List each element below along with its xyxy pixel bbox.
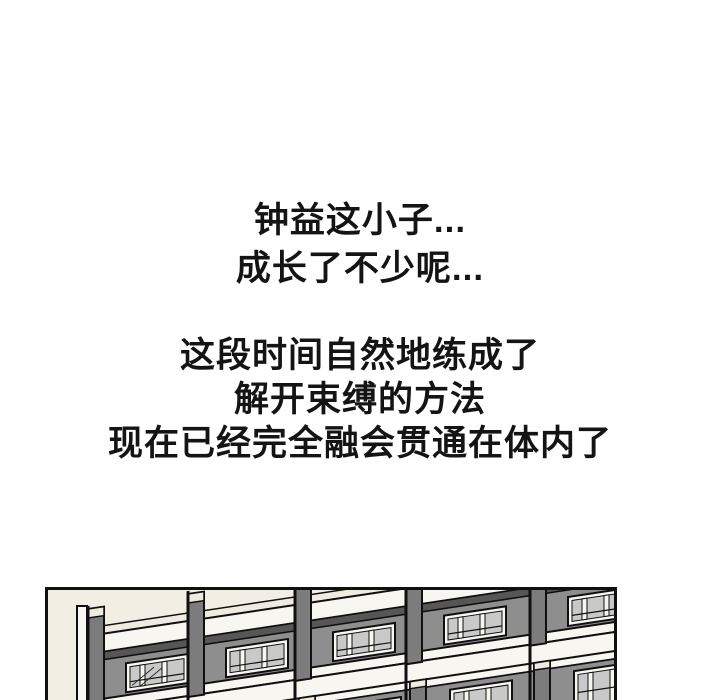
- webtoon-page: 钟益这小子... 成长了不少呢... 这段时间自然地练成了 解开束缚的方法 现在…: [0, 0, 720, 700]
- narration-line: 这段时间自然地练成了: [0, 334, 720, 378]
- window-bay-fin: [534, 661, 550, 700]
- window-bay-fin: [530, 590, 546, 646]
- window-bay-fin: [410, 679, 426, 700]
- narration-line: 现在已经完全融会贯通在体内了: [0, 422, 720, 466]
- narration-line: 成长了不少呢...: [0, 245, 720, 293]
- window-bay-fin: [295, 590, 311, 681]
- building-illustration: [48, 590, 614, 700]
- narration-line: 钟益这小子...: [0, 197, 720, 245]
- narration-block-1: 钟益这小子... 成长了不少呢...: [0, 197, 720, 293]
- corner-pole: [77, 606, 87, 700]
- window-bay-fin: [188, 592, 204, 697]
- window: [568, 590, 614, 626]
- narration-line: 解开束缚的方法: [0, 378, 720, 422]
- window-bay-fin: [406, 590, 422, 664]
- comic-panel: [45, 587, 617, 700]
- narration-block-2: 这段时间自然地练成了 解开束缚的方法 现在已经完全融会贯通在体内了: [0, 334, 720, 466]
- window-bay-fin: [88, 607, 104, 700]
